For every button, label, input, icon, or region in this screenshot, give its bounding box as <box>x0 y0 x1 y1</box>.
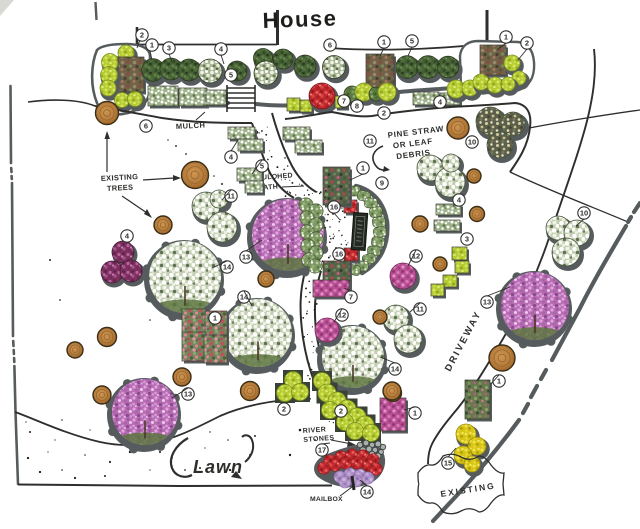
svg-text:13: 13 <box>184 390 192 399</box>
svg-text:13: 13 <box>242 253 250 262</box>
svg-text:House: House <box>262 5 338 33</box>
svg-text:10: 10 <box>580 209 588 218</box>
svg-text:17: 17 <box>318 446 326 455</box>
svg-text:14: 14 <box>391 365 400 374</box>
svg-text:3: 3 <box>167 44 171 53</box>
svg-text:5: 5 <box>410 37 414 46</box>
svg-text:14: 14 <box>363 488 372 497</box>
svg-text:1: 1 <box>382 38 386 47</box>
svg-text:3: 3 <box>465 235 469 244</box>
svg-text:TREES: TREES <box>107 183 134 193</box>
svg-text:15: 15 <box>444 459 452 468</box>
svg-text:16: 16 <box>335 250 343 259</box>
svg-text:1: 1 <box>361 164 365 173</box>
svg-text:5: 5 <box>260 162 264 171</box>
svg-text:7: 7 <box>342 97 346 106</box>
svg-text:6: 6 <box>328 41 332 50</box>
svg-text:2: 2 <box>339 407 343 416</box>
svg-text:2: 2 <box>140 31 144 40</box>
svg-text:6: 6 <box>144 122 148 131</box>
svg-text:16: 16 <box>330 203 338 212</box>
svg-text:7: 7 <box>349 293 353 302</box>
svg-text:14: 14 <box>223 263 232 272</box>
svg-text:13: 13 <box>483 298 491 307</box>
svg-text:9: 9 <box>380 179 384 188</box>
svg-text:1: 1 <box>504 33 508 42</box>
svg-text:2: 2 <box>382 109 386 118</box>
svg-text:2: 2 <box>525 39 529 48</box>
svg-text:10: 10 <box>468 138 476 147</box>
svg-text:1: 1 <box>413 409 417 418</box>
svg-text:1: 1 <box>150 41 154 50</box>
svg-text:8: 8 <box>355 102 359 111</box>
svg-text:11: 11 <box>366 137 374 146</box>
svg-text:5: 5 <box>229 71 233 80</box>
svg-text:1: 1 <box>213 314 217 323</box>
svg-text:MAILBOX: MAILBOX <box>310 496 343 503</box>
svg-text:1: 1 <box>497 377 501 386</box>
svg-text:MULCH: MULCH <box>176 120 206 131</box>
svg-text:2: 2 <box>282 405 286 414</box>
svg-text:12: 12 <box>338 311 346 320</box>
